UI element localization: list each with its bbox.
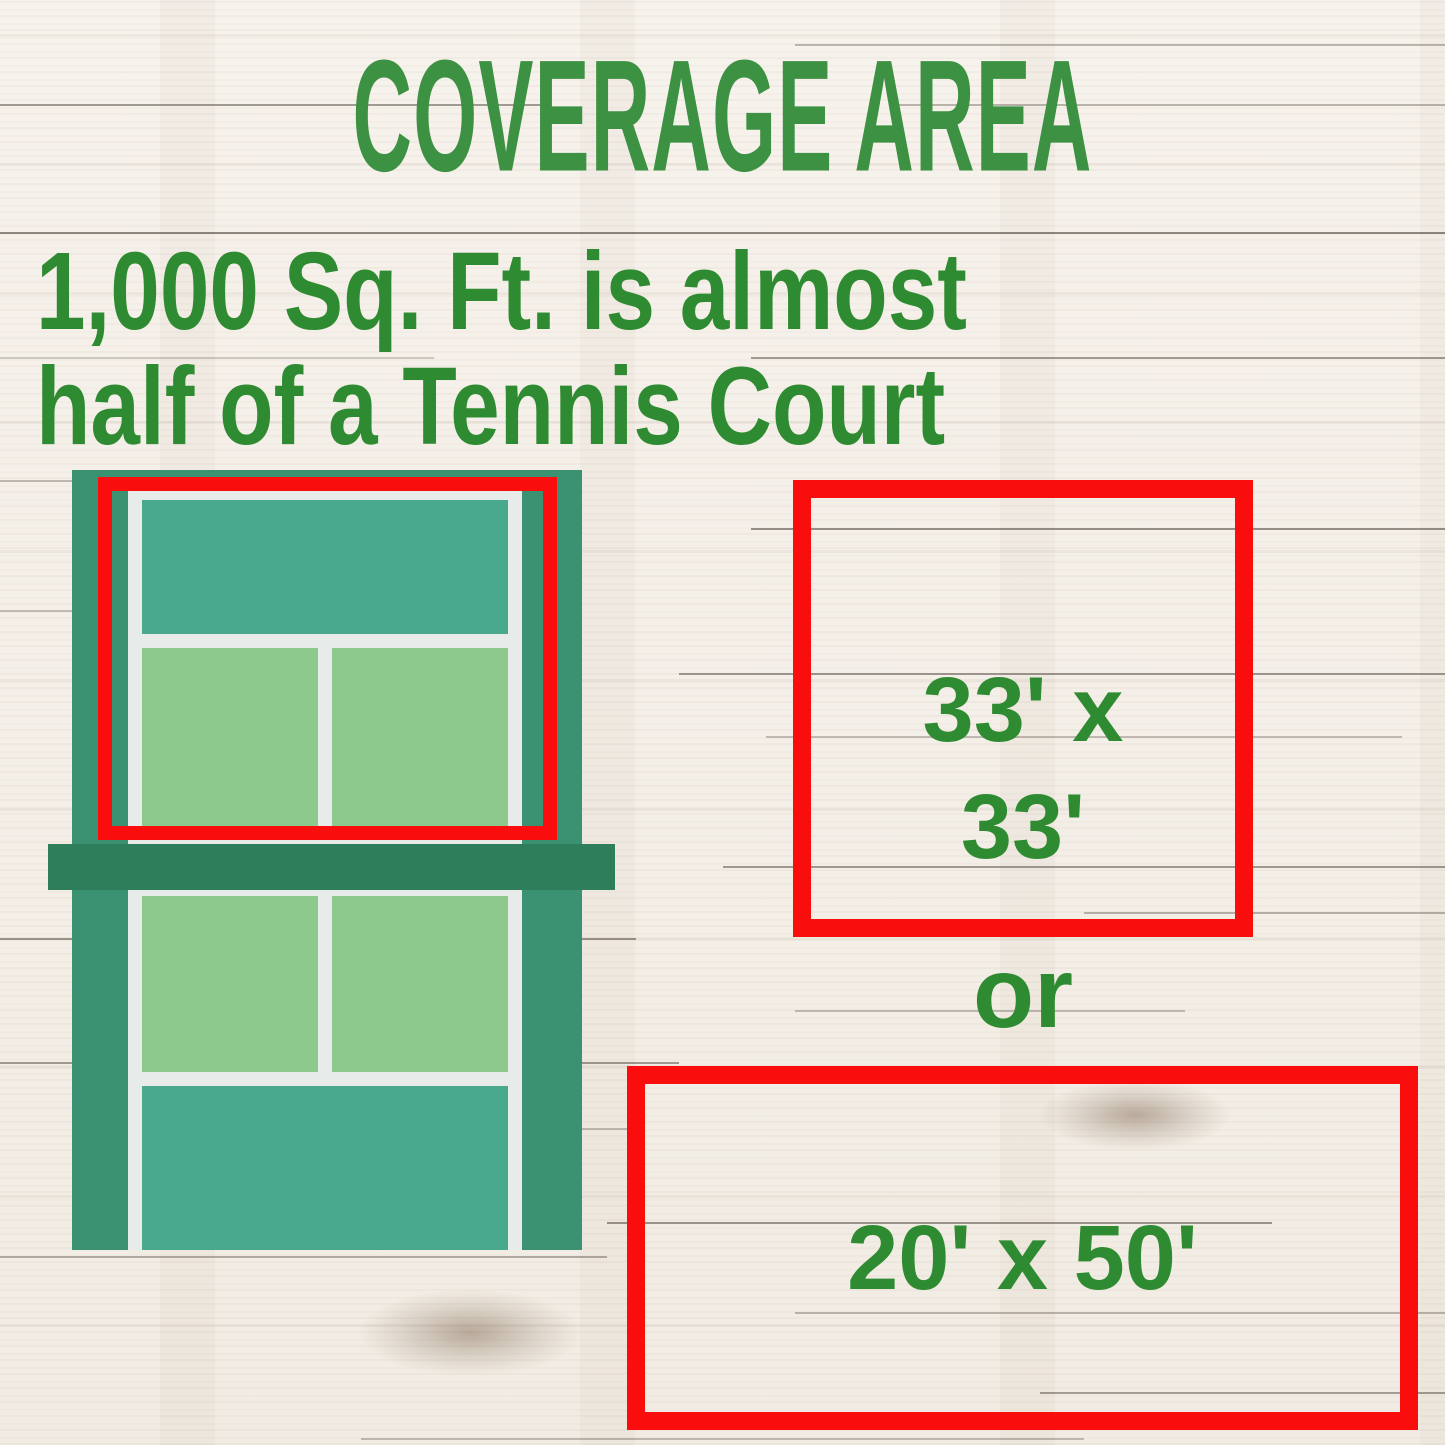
court-service-box-lower-left [142,896,318,1072]
subtitle: 1,000 Sq. Ft. is almost half of a Tennis… [36,234,967,464]
tennis-court-illustration [72,470,582,1250]
plank-seam [0,1256,607,1258]
or-divider-label: or [793,938,1253,1048]
court-backcourt-bottom [142,1086,508,1250]
subtitle-line-1: 1,000 Sq. Ft. is almost [36,234,967,349]
coverage-square-label: 33' x 33' [811,558,1235,979]
square-dimension-line-2: 33' [961,769,1085,886]
plank-seam [361,1438,1084,1440]
coverage-square-outline: 33' x 33' [793,480,1253,937]
court-net-band [48,844,615,890]
rect-dimension-label: 20' x 50' [645,1094,1400,1422]
subtitle-line-2: half of a Tennis Court [36,349,967,464]
court-service-box-lower-right [332,896,508,1072]
page-title: COVERAGE AREA [325,20,1120,211]
coverage-highlight-outline [98,477,557,840]
infographic-canvas: COVERAGE AREA 1,000 Sq. Ft. is almost ha… [0,0,1445,1445]
wood-knot [360,1290,580,1375]
square-dimension-line-1: 33' x [923,652,1124,769]
coverage-rect-outline: 20' x 50' [627,1066,1418,1430]
